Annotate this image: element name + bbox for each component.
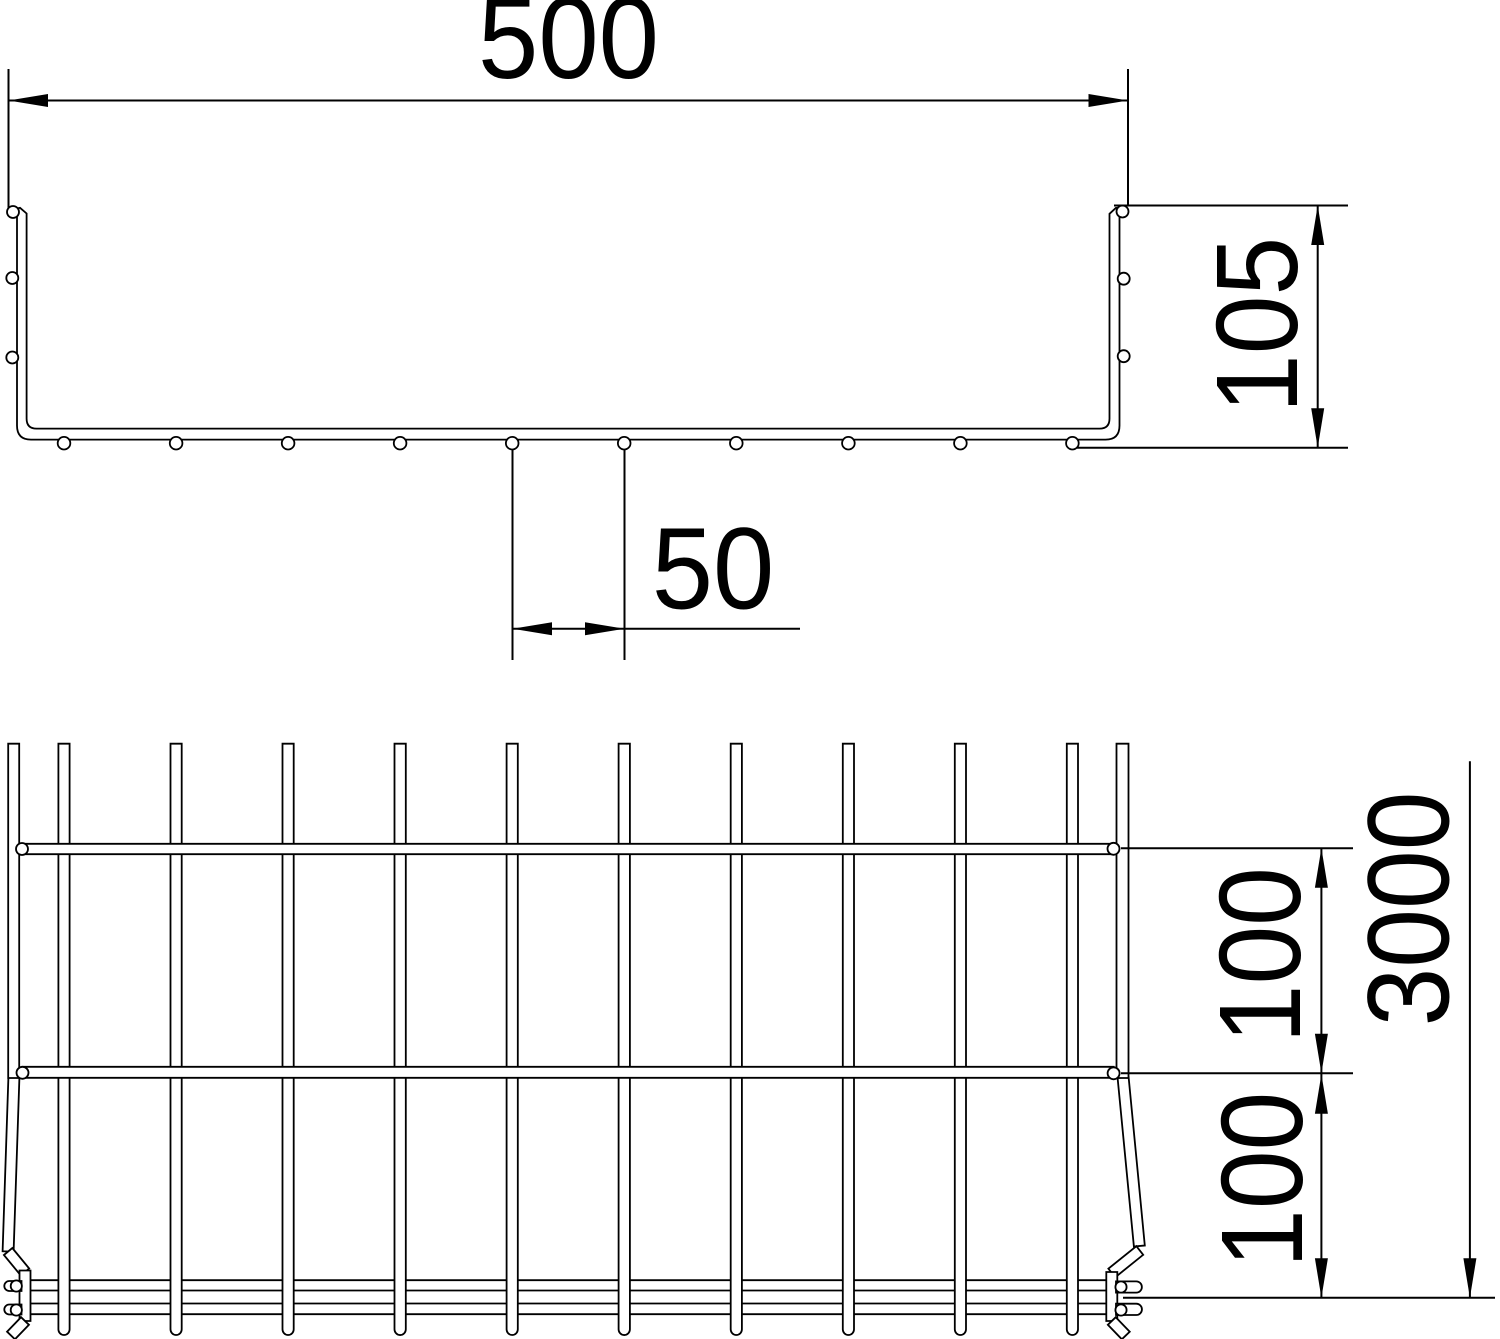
svg-text:500: 500	[478, 0, 659, 103]
svg-text:3000: 3000	[1344, 792, 1474, 1027]
svg-text:50: 50	[652, 504, 775, 633]
svg-text:100: 100	[1197, 1092, 1327, 1268]
svg-text:105: 105	[1192, 237, 1322, 413]
svg-text:100: 100	[1195, 867, 1325, 1043]
